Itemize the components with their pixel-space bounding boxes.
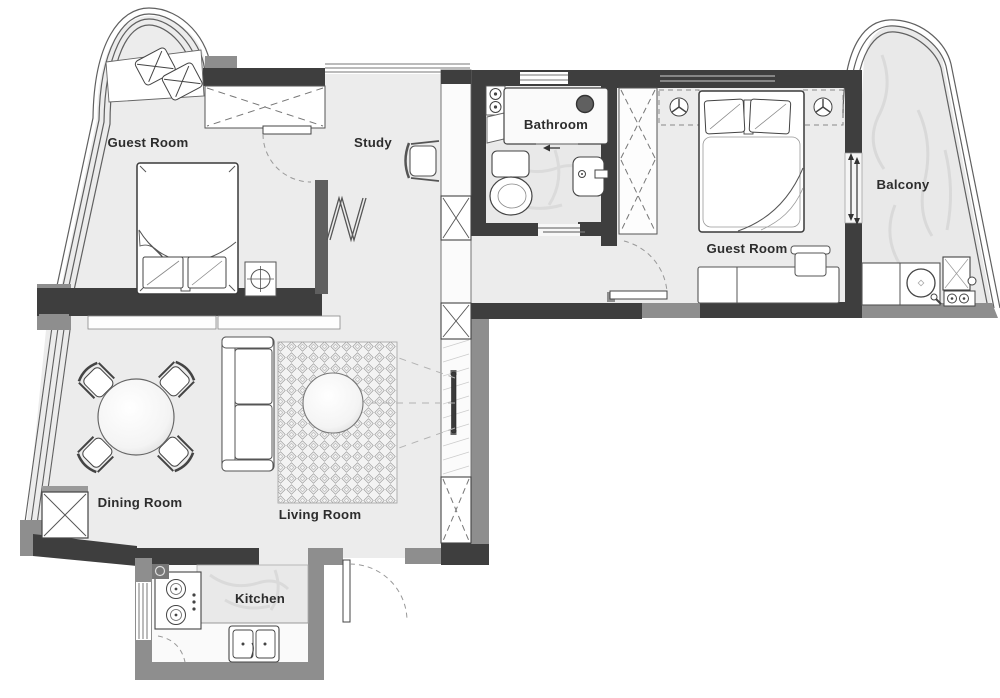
room-kitchen: [136, 560, 407, 662]
dining-table-icon: [98, 379, 174, 455]
label-living-room: Living Room: [279, 507, 362, 522]
wall-kitchen-right: [308, 565, 324, 680]
bathroom-sliding-door-icon: [538, 224, 585, 236]
closet-icon: [205, 86, 325, 128]
wall-closet-top: [203, 68, 325, 86]
gas-point-icon: [152, 564, 169, 579]
wall-bathroom-south-right: [578, 222, 604, 236]
nightstand-lamp-icon: [245, 262, 276, 296]
wall-guestright-south: [700, 302, 845, 318]
kitchen-window: [136, 582, 151, 640]
wall-dining-window-cap-top: [39, 314, 69, 330]
desk-chair-icon: [791, 246, 830, 276]
wall-kitchen-top: [137, 548, 259, 565]
structural-column-icon: [42, 486, 88, 538]
bath-shelf-icon: [487, 113, 504, 143]
wall-balcony-pillar: [845, 70, 862, 153]
label-bathroom: Bathroom: [524, 117, 588, 132]
washer-valves-icon: [486, 86, 505, 115]
wall-kitchen-topright: [308, 548, 343, 565]
entry-threshold: [642, 303, 700, 318]
coffee-table-icon: [303, 373, 363, 433]
wall-guestright-top: [617, 70, 862, 88]
kitchen-sink-icon: [229, 626, 279, 662]
toilet-icon: [490, 151, 532, 215]
wall-tv-backing: [471, 319, 489, 544]
wall-study-stub: [315, 180, 328, 294]
sofa-icon: [222, 337, 274, 471]
wall-kitchen-bottom: [135, 662, 318, 680]
dining-north-sill: [88, 316, 340, 329]
balcony-sliding-door-icon: [845, 153, 862, 225]
wall-hall-south-a: [470, 303, 560, 319]
wall-bathroom-west: [470, 86, 486, 236]
vanity-sink-icon: [504, 88, 608, 144]
structural-column-icon: [441, 196, 471, 240]
bathroom-top-window: [520, 72, 568, 84]
wall-living-se-corner: [441, 541, 489, 565]
label-balcony: Balcony: [876, 177, 929, 192]
room-balcony: [862, 257, 976, 306]
label-study: Study: [354, 135, 392, 150]
label-kitchen: Kitchen: [235, 591, 285, 606]
wall-hall-south-b: [560, 303, 642, 319]
strip-top-wall: [441, 70, 471, 84]
wall-guest-balcony-lower: [845, 223, 862, 318]
wall-bathroom-south-left: [486, 223, 538, 236]
label-dining-room: Dining Room: [98, 495, 183, 510]
stove-icon: [155, 572, 201, 629]
floor-plan: Guest Room Study Bathroom Guest Room Bal…: [0, 0, 1000, 698]
label-guest-room-right: Guest Room: [707, 241, 788, 256]
double-bed-icon: [137, 163, 238, 294]
kitchen-door-icon: [343, 560, 407, 622]
structural-column-icon: [441, 477, 471, 543]
label-guest-room-left: Guest Room: [108, 135, 189, 150]
shower-icon: [573, 157, 608, 196]
double-bed-icon: [699, 91, 804, 232]
structural-column-icon: [441, 303, 471, 339]
floor-plan-page: Guest Room Study Bathroom Guest Room Bal…: [0, 0, 1000, 698]
gas-burner-icon: [944, 291, 975, 306]
wardrobe-icon: [619, 88, 657, 234]
